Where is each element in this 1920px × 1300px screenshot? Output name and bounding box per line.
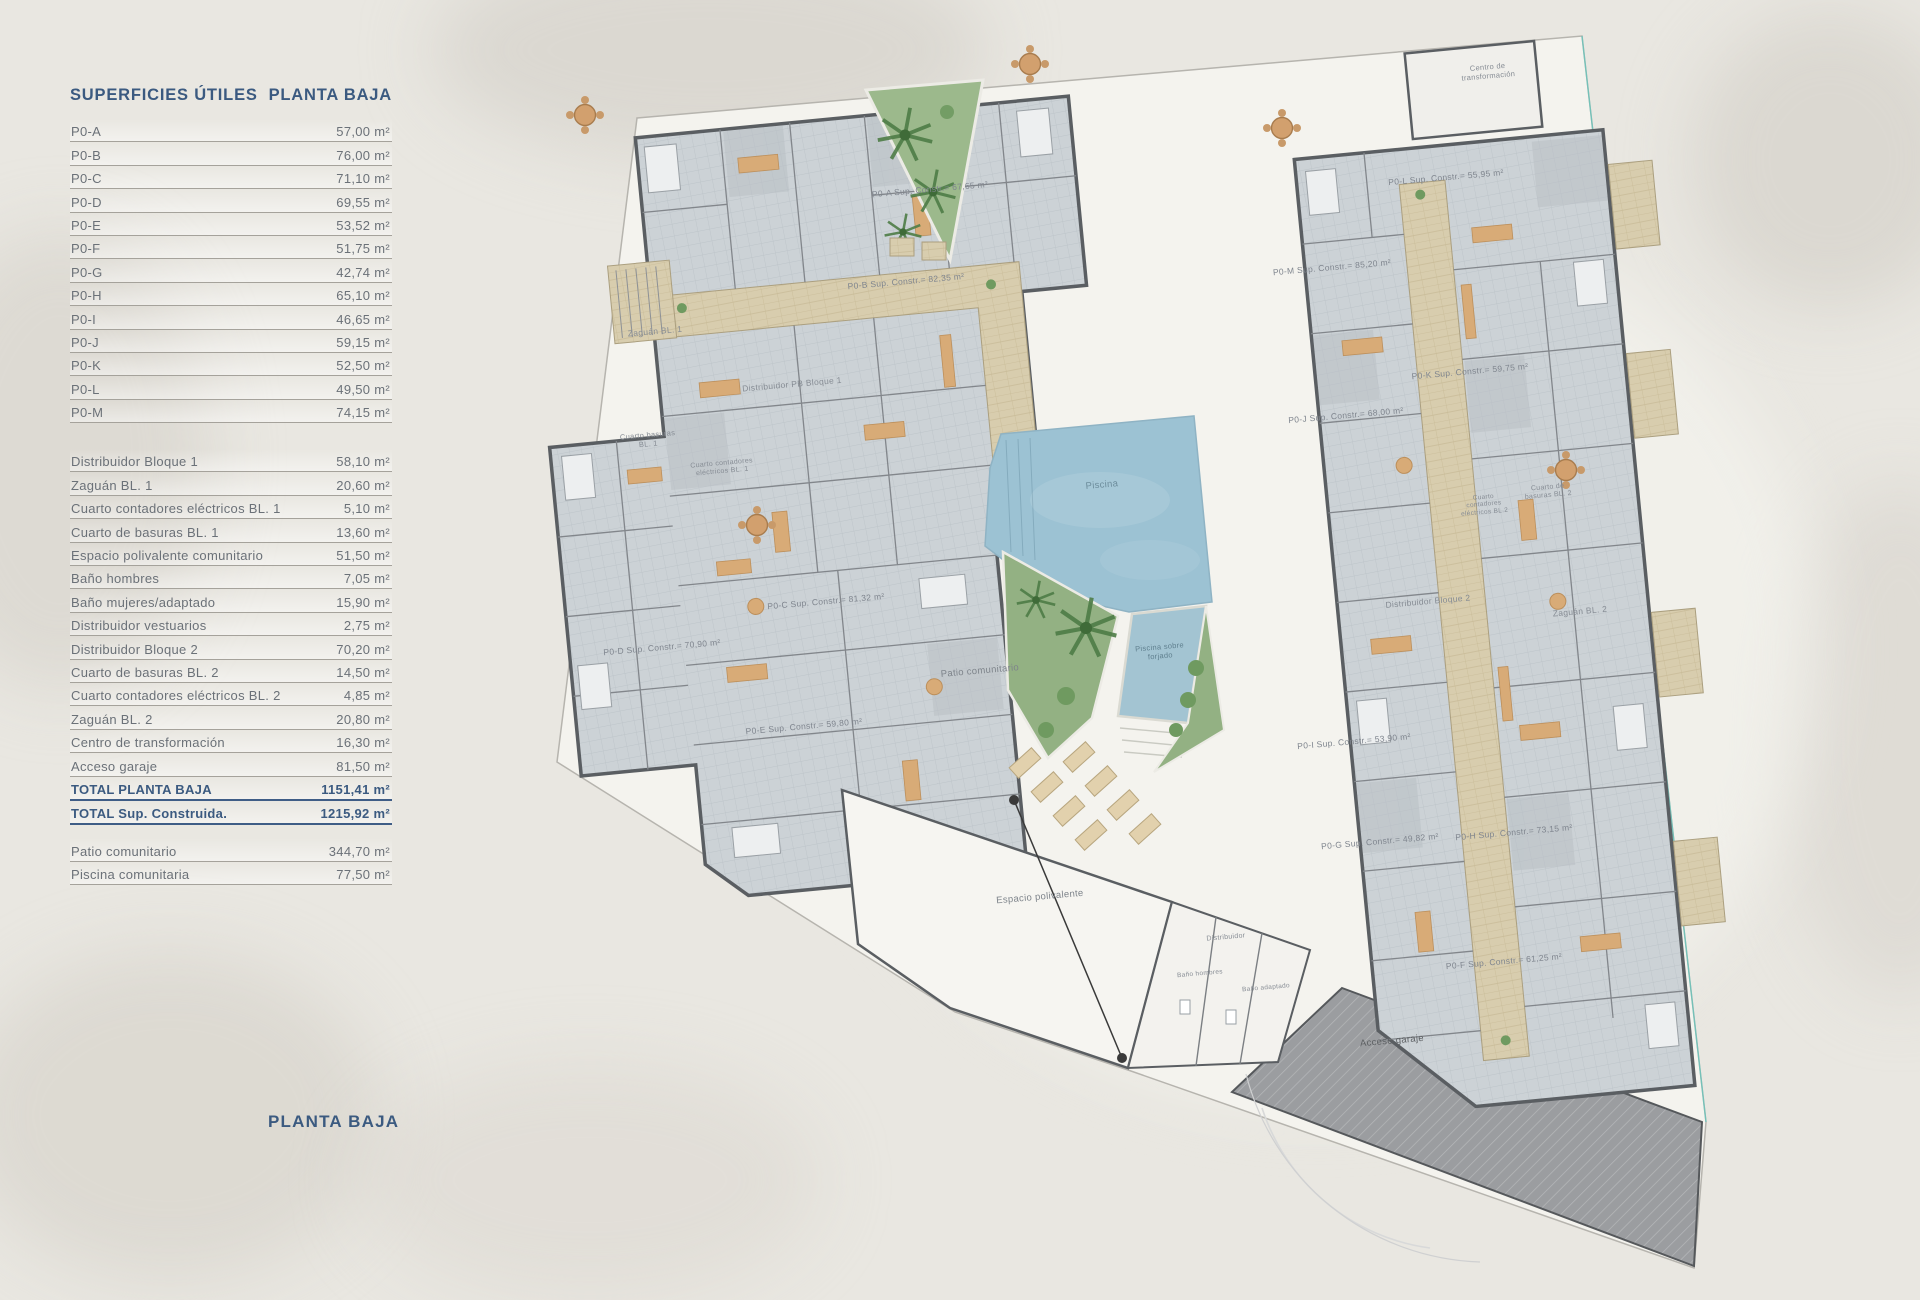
floor-plan: Zaguán BL. 1 Distribuidor PB Bloque 1 Cu…	[0, 0, 1920, 1280]
transformer-room	[1405, 41, 1543, 139]
plan-title: PLANTA BAJA	[268, 1112, 399, 1132]
